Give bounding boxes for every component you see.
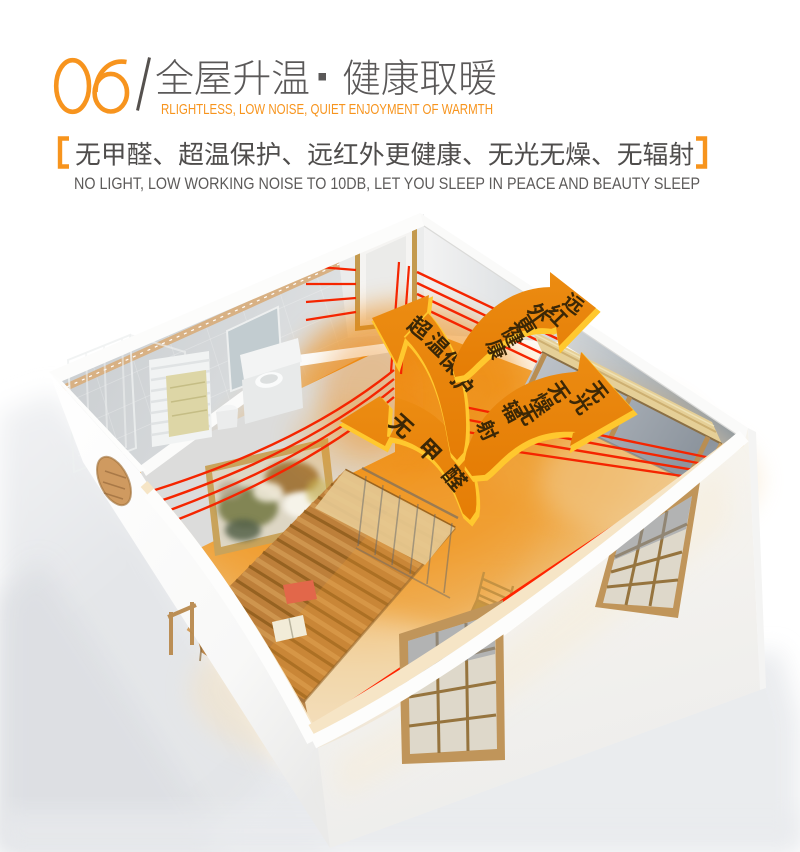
svg-text:RLIGHTLESS, LOW NOISE, QUIET E: RLIGHTLESS, LOW NOISE, QUIET ENJOYMENT O… [161,101,493,118]
svg-text:NO LIGHT, LOW WORKING NOISE TO: NO LIGHT, LOW WORKING NOISE TO 10DB, LET… [74,175,700,193]
